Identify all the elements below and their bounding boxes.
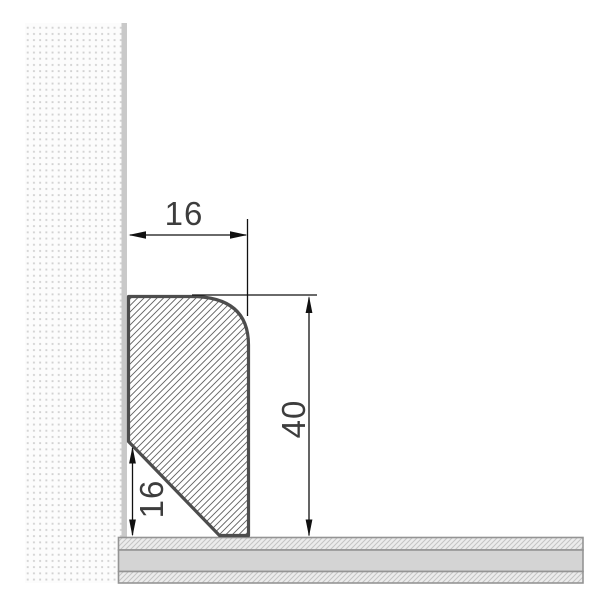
cross-section-diagram: 16 40 16 <box>0 0 604 604</box>
floor-section <box>119 538 584 584</box>
label-profile-height: 40 <box>275 400 312 439</box>
arrow-down-icon <box>129 520 136 537</box>
label-profile-width: 16 <box>165 195 204 232</box>
floor-top-layer <box>119 538 584 551</box>
wall-section <box>25 23 127 583</box>
label-bevel-height: 16 <box>133 480 170 519</box>
floor-core-layer <box>119 550 584 572</box>
wall-surface-line <box>122 23 128 583</box>
technical-drawing-canvas: 16 40 16 <box>0 0 604 604</box>
floor-bottom-layer <box>119 572 584 584</box>
arrow-right-icon <box>230 231 248 238</box>
arrow-left-icon <box>129 231 147 238</box>
arrow-down-icon <box>306 520 313 537</box>
arrow-up-icon <box>306 296 313 313</box>
wall-dotted-body <box>25 23 122 583</box>
